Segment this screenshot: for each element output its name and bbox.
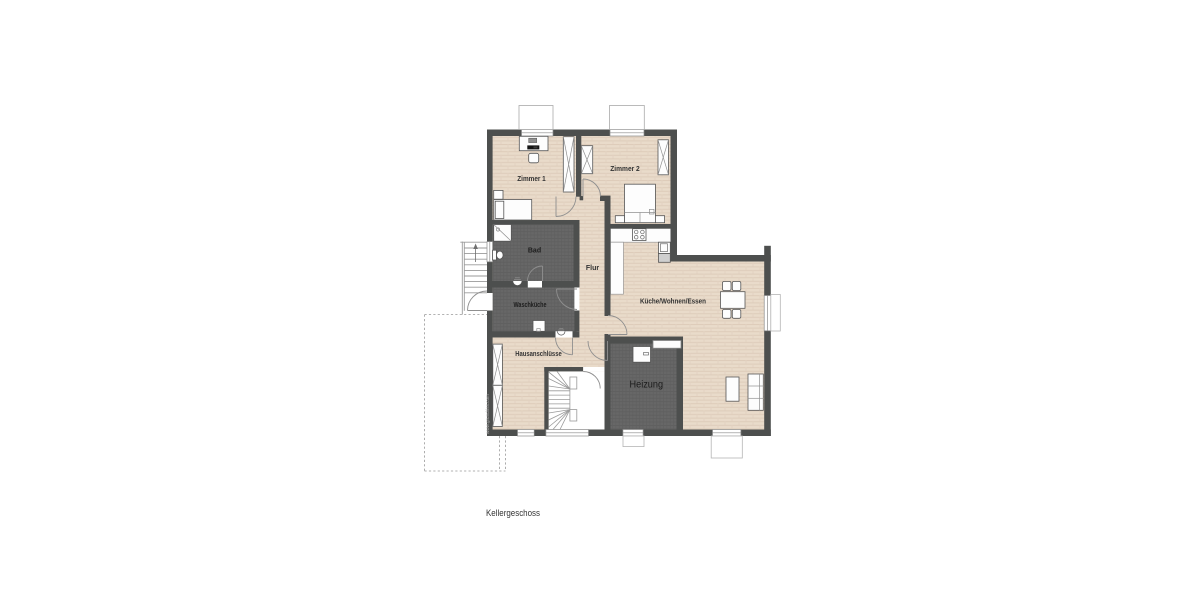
svg-text:Zimmer 1: Zimmer 1 [517,176,546,183]
svg-text:www.grundriss.com: www.grundriss.com [485,394,490,434]
svg-text:Kellergeschoss: Kellergeschoss [486,508,541,518]
svg-text:Flur: Flur [586,265,599,272]
svg-text:Hausanschlüsse: Hausanschlüsse [515,351,562,358]
svg-text:Waschküche: Waschküche [514,302,547,309]
svg-text:Küche/Wohnen/Essen: Küche/Wohnen/Essen [640,299,706,306]
svg-text:Zimmer 2: Zimmer 2 [610,166,640,173]
svg-text:Heizung: Heizung [630,379,664,390]
svg-text:Bad: Bad [528,248,541,255]
